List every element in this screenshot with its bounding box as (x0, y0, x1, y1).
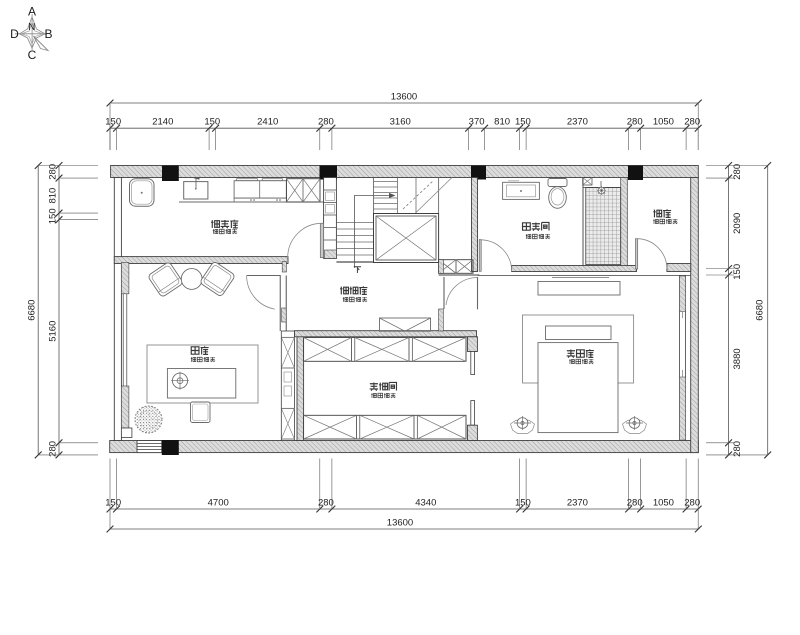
svg-text:280: 280 (627, 498, 643, 509)
svg-text:2370: 2370 (567, 498, 588, 509)
svg-text:2090: 2090 (732, 213, 743, 234)
svg-text:280: 280 (627, 117, 643, 128)
svg-text:3160: 3160 (390, 117, 411, 128)
svg-text:5160: 5160 (48, 321, 59, 342)
svg-text:C: C (28, 48, 37, 62)
svg-text:150: 150 (732, 264, 743, 280)
svg-text:1050: 1050 (653, 498, 674, 509)
svg-text:150: 150 (105, 117, 121, 128)
svg-text:13600: 13600 (391, 92, 417, 103)
svg-text:13600: 13600 (387, 518, 413, 529)
svg-text:2410: 2410 (257, 117, 278, 128)
svg-text:370: 370 (469, 117, 485, 128)
svg-text:280: 280 (684, 117, 700, 128)
svg-text:280: 280 (318, 117, 334, 128)
svg-text:6680: 6680 (27, 300, 38, 321)
svg-text:280: 280 (684, 498, 700, 509)
svg-text:150: 150 (515, 498, 531, 509)
svg-text:B: B (44, 27, 52, 41)
svg-text:6680: 6680 (755, 300, 766, 321)
svg-text:150: 150 (48, 208, 59, 224)
svg-text:280: 280 (48, 441, 59, 457)
svg-text:810: 810 (494, 117, 510, 128)
svg-text:3880: 3880 (732, 348, 743, 369)
svg-text:150: 150 (105, 498, 121, 509)
svg-text:D: D (10, 27, 19, 41)
svg-text:N: N (28, 22, 35, 33)
svg-text:280: 280 (48, 164, 59, 180)
svg-text:4700: 4700 (208, 498, 229, 509)
svg-text:280: 280 (318, 498, 334, 509)
svg-text:A: A (28, 5, 36, 19)
svg-text:280: 280 (732, 164, 743, 180)
svg-text:150: 150 (204, 117, 220, 128)
svg-text:810: 810 (48, 188, 59, 204)
svg-text:2370: 2370 (567, 117, 588, 128)
svg-text:4340: 4340 (415, 498, 436, 509)
svg-text:1050: 1050 (653, 117, 674, 128)
svg-text:280: 280 (732, 441, 743, 457)
svg-text:150: 150 (515, 117, 531, 128)
svg-text:2140: 2140 (152, 117, 173, 128)
